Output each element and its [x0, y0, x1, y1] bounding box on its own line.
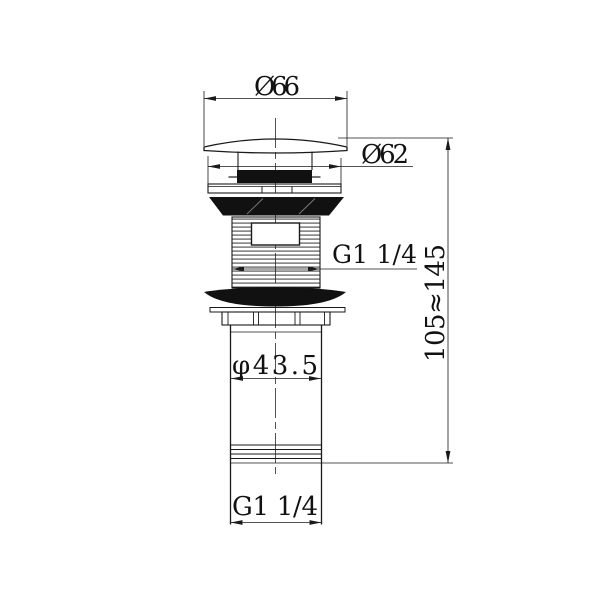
overflow-hole: [252, 223, 300, 245]
arrowhead-top: [446, 138, 451, 150]
drain-drawing-svg: Ø66 Ø62 G1 1/4: [0, 0, 600, 600]
dimension-tail-thread: G1 1/4: [231, 492, 322, 525]
flange-plate: [208, 184, 341, 193]
friction-washer: [210, 308, 345, 313]
flange-seal-body: [209, 197, 344, 216]
dim-label-overall-height: 105≈145: [421, 244, 451, 362]
arrowhead-left: [204, 96, 216, 101]
dimension-flange-diameter: Ø62: [208, 140, 413, 193]
arrowhead-bottom: [446, 451, 451, 463]
dim-label-flange-diameter: Ø62: [361, 140, 409, 170]
mounting-flange-seal: [209, 197, 344, 216]
dimension-tube-diameter: φ43.5: [231, 351, 321, 381]
technical-drawing-canvas: Ø66 Ø62 G1 1/4: [0, 0, 600, 600]
dim-label-tube-diameter: φ43.5: [232, 351, 318, 381]
arrowhead-left: [208, 164, 220, 169]
dim-label-tail-thread: G1 1/4: [232, 492, 318, 522]
arrowhead-right: [335, 96, 347, 101]
rubber-washer: [204, 288, 346, 307]
flange-outline: [208, 184, 341, 193]
cap-seal-ring: [237, 170, 312, 183]
dim-label-body-thread: G1 1/4: [332, 240, 417, 269]
arrowhead-right: [329, 164, 341, 169]
locknut-outline: [222, 312, 330, 325]
dim-label-cap-diameter: Ø66: [254, 72, 300, 102]
locknut: [222, 312, 330, 325]
